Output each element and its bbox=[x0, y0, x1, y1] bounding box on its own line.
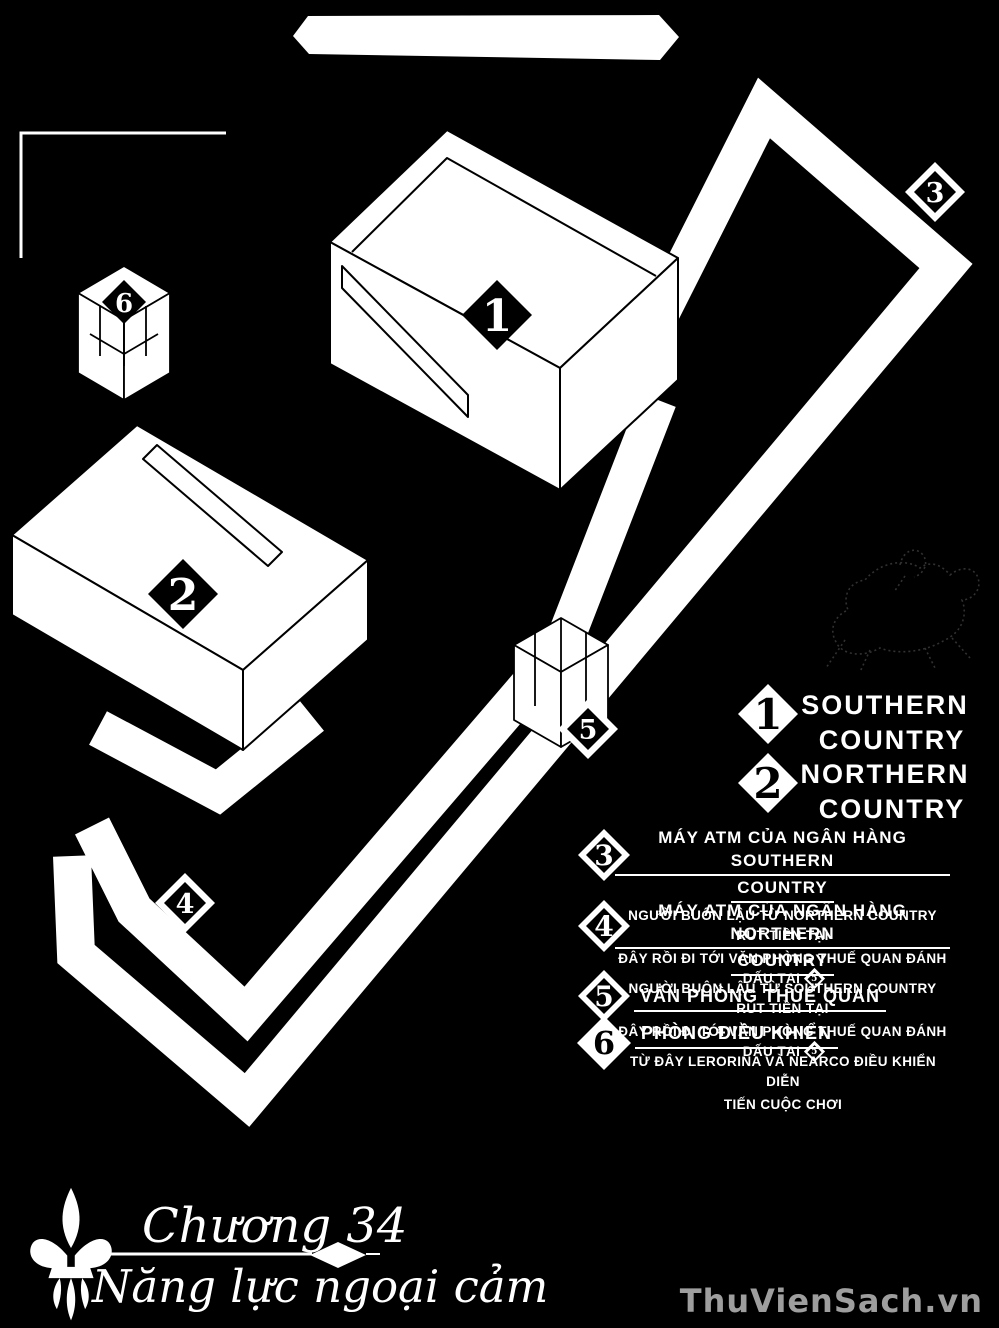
item-6-heading: PHÒNG ĐIỀU KHIỂN bbox=[613, 1022, 953, 1049]
item-4-heading-line2: COUNTRY bbox=[615, 949, 950, 976]
item-5-heading: VĂN PHÒNG THUẾ QUAN bbox=[634, 985, 964, 1012]
isometric-map: 1 2 3 4 5 6 bbox=[0, 0, 999, 1328]
svg-text:4: 4 bbox=[176, 889, 195, 920]
item-3-heading-line1: MÁY ATM CỦA NGÂN HÀNG SOUTHERN bbox=[615, 826, 950, 876]
svg-text:1: 1 bbox=[753, 690, 782, 739]
country-1-line2: COUNTRY bbox=[796, 725, 974, 756]
svg-text:5: 5 bbox=[594, 980, 613, 1013]
site-watermark: ThuVienSach.vn bbox=[680, 1282, 983, 1320]
svg-text:2: 2 bbox=[168, 570, 199, 621]
svg-text:3: 3 bbox=[594, 839, 613, 872]
legend-item-5: VĂN PHÒNG THUẾ QUAN bbox=[634, 985, 964, 1012]
manga-page: 1 2 3 4 5 6 bbox=[0, 0, 999, 1328]
svg-text:4: 4 bbox=[594, 910, 613, 943]
chapter-number: Chương 34 bbox=[142, 1198, 407, 1254]
legend-country-2: NORTHERN COUNTRY bbox=[796, 759, 974, 825]
legend-country-1: SOUTHERN COUNTRY bbox=[796, 690, 974, 756]
legend-icon-1: 1 bbox=[738, 684, 798, 744]
svg-text:3: 3 bbox=[926, 178, 945, 209]
item-6-body-line1: TỪ ĐÂY LERORINA VÀ NEARCO ĐIỀU KHIỂN DIỄ… bbox=[613, 1052, 953, 1092]
chapter-title: Năng lực ngoại cảm bbox=[92, 1260, 548, 1313]
item-6-body-line2: TIẾN CUỘC CHƠI bbox=[613, 1095, 953, 1115]
legend-item-6: PHÒNG ĐIỀU KHIỂN TỪ ĐÂY LERORINA VÀ NEAR… bbox=[613, 1022, 953, 1115]
svg-text:2: 2 bbox=[753, 759, 782, 808]
svg-text:5: 5 bbox=[579, 715, 598, 746]
horse-sketch bbox=[826, 550, 979, 672]
legend-icon-2: 2 bbox=[738, 753, 798, 813]
country-1-line1: SOUTHERN bbox=[796, 690, 974, 721]
corner-bracket bbox=[21, 133, 226, 258]
title-banner bbox=[293, 15, 679, 60]
svg-text:1: 1 bbox=[482, 291, 513, 342]
svg-text:6: 6 bbox=[593, 1024, 615, 1062]
country-2-line1: NORTHERN bbox=[796, 759, 974, 790]
country-2-line2: COUNTRY bbox=[796, 794, 974, 825]
marker-3: 3 bbox=[905, 162, 965, 222]
svg-text:6: 6 bbox=[115, 289, 133, 319]
item-4-heading-line1: MÁY ATM CỦA NGÂN HÀNG NORTHERN bbox=[615, 899, 950, 949]
